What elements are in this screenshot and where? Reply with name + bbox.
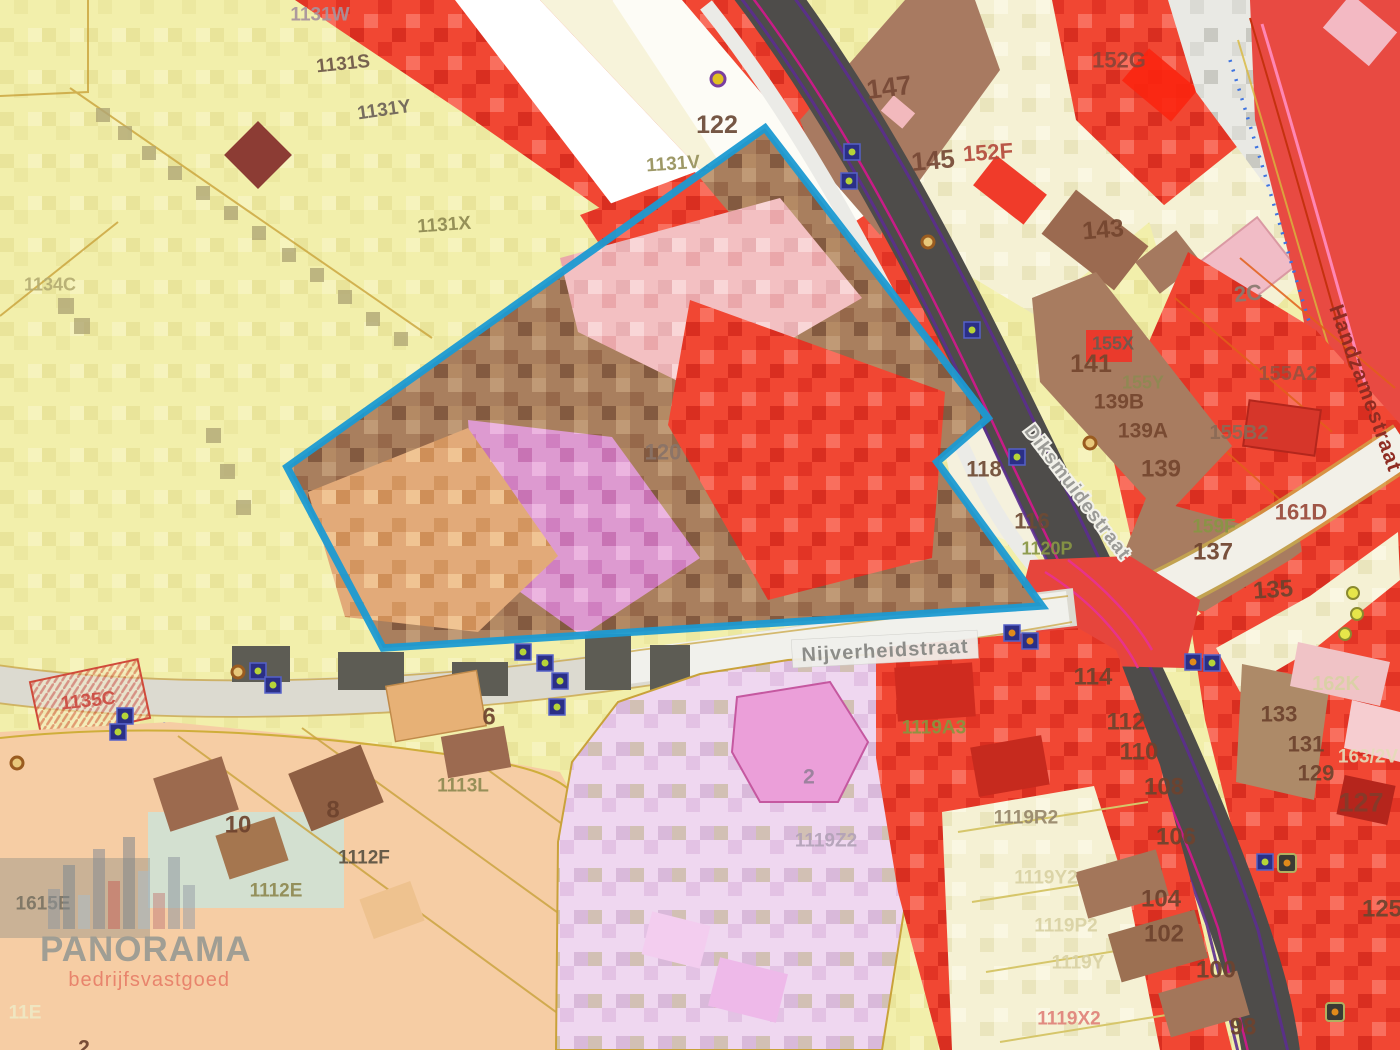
parcel-label-116-25: 116 — [1014, 509, 1050, 534]
map-marker-circle-brown[interactable] — [1084, 437, 1096, 449]
map-marker-square[interactable] — [515, 644, 531, 660]
parcel-label-1134C-52: 1134C — [24, 274, 76, 294]
map-marker-circle-brown[interactable] — [232, 666, 244, 678]
parcel-label-8-55: 8 — [326, 796, 339, 823]
map-marker-circle-yellow[interactable] — [1351, 608, 1363, 620]
parcel-label-104-33: 104 — [1141, 885, 1182, 912]
parcel-label-1119P2-47: 1119P2 — [1034, 916, 1097, 937]
parcel-label-155A2-16: 155A2 — [1259, 363, 1318, 385]
map-marker-square[interactable] — [552, 673, 568, 689]
parcel-label-1131X-3: 1131X — [416, 213, 472, 238]
parcel-label-137-22: 137 — [1193, 538, 1233, 565]
map-marker-circle-yellow[interactable] — [1339, 628, 1351, 640]
map-marker-square-orange[interactable] — [1004, 625, 1020, 641]
parcel-label-102-34: 102 — [1144, 920, 1184, 947]
parcel-label-135-23: 135 — [1252, 575, 1294, 605]
parcel-label-141-13: 141 — [1070, 350, 1112, 378]
parcel-label-155B2-18: 155B2 — [1210, 422, 1269, 444]
parcel-label-129-42: 129 — [1298, 761, 1335, 786]
parcel-label-152F-8: 152F — [962, 138, 1014, 166]
map-marker-square-orange[interactable] — [1022, 633, 1038, 649]
parcel-label-110-30: 110 — [1120, 738, 1159, 765]
parcel-label-161D-20: 161D — [1275, 500, 1328, 525]
map-marker-square[interactable] — [841, 173, 857, 189]
parcel-label-1119R2-45: 1119R2 — [994, 808, 1058, 829]
map-marker-square[interactable] — [117, 708, 133, 724]
parcel-label-106-32: 106 — [1156, 823, 1196, 850]
parcel-label-6-56: 6 — [482, 703, 495, 730]
map-marker-circle-yellow[interactable] — [1347, 587, 1359, 599]
parcel-label-139-19: 139 — [1141, 455, 1181, 482]
parcel-label-127-43: 127 — [1338, 787, 1383, 817]
parcel-label-1119Z2-50: 1119Z2 — [795, 831, 857, 852]
map-marker-circle-purple[interactable] — [711, 72, 725, 86]
cadastral-map-canvas[interactable]: NijverheidstraatDiksmuidestraatHandzames… — [0, 0, 1400, 1050]
map-marker-square[interactable] — [110, 724, 126, 740]
parcel-label-125-37: 125 — [1362, 895, 1400, 922]
map-marker-square[interactable] — [1257, 854, 1273, 870]
map-marker-square[interactable] — [250, 663, 266, 679]
parcel-label-98-36: 98 — [1230, 1013, 1257, 1040]
map-viewport[interactable]: NijverheidstraatDiksmuidestraatHandzames… — [0, 0, 1400, 1050]
parcel-label-155Y-14: 155Y — [1122, 372, 1164, 392]
parcel-label-1615E-60: 1615E — [16, 894, 71, 915]
parcel-label-2-62: 2 — [78, 1036, 90, 1050]
parcel-label-10-54: 10 — [225, 811, 252, 838]
map-marker-bolt[interactable] — [1326, 1003, 1344, 1021]
parcel-label-100-35: 100 — [1196, 956, 1236, 983]
parcel-label-152G-9: 152G — [1092, 48, 1146, 73]
parcel-label-108-31: 108 — [1144, 773, 1184, 800]
parcel-label-114-28: 114 — [1074, 663, 1113, 690]
map-marker-square[interactable] — [1204, 655, 1220, 671]
map-marker-square-orange[interactable] — [1185, 654, 1201, 670]
parcel-label-139A-17: 139A — [1118, 419, 1168, 442]
parcel-label-162K-38: 162K — [1312, 673, 1360, 695]
map-marker-square[interactable] — [265, 677, 281, 693]
parcel-label-112-29: 112 — [1107, 708, 1146, 735]
parcel-label-118-24: 118 — [966, 457, 1002, 482]
parcel-label-131-40: 131 — [1288, 732, 1325, 757]
parcel-label-1119Y-48: 1119Y — [1052, 953, 1105, 974]
map-marker-circle-brown[interactable] — [11, 757, 23, 769]
parcel-label-122-5: 122 — [696, 111, 738, 139]
parcel-label-1119A3-44: 1119A3 — [902, 718, 966, 739]
map-marker-square[interactable] — [537, 655, 553, 671]
parcel-label-1119X2-49: 1119X2 — [1037, 1009, 1100, 1030]
parcel-label-133-39: 133 — [1261, 702, 1298, 727]
parcel-label-1131W-0: 1131W — [290, 5, 349, 26]
parcel-label-159F-21: 159F — [1192, 517, 1235, 538]
parcel-label-147-6: 147 — [865, 70, 913, 105]
map-marker-square[interactable] — [964, 322, 980, 338]
map-marker-square[interactable] — [844, 144, 860, 160]
map-marker-square[interactable] — [549, 699, 565, 715]
parcel-label-1113L-57: 1113L — [437, 776, 489, 797]
parcel-label-163/2V-41: 163/2V — [1338, 747, 1399, 768]
parcel-label-139B-15: 139B — [1094, 390, 1144, 413]
map-marker-circle-brown[interactable] — [922, 236, 934, 248]
parcel-label-1131V-4: 1131V — [645, 152, 701, 177]
parcel-label-120-27: 120 — [645, 440, 682, 465]
parcel-label-11E-61: 11E — [9, 1003, 42, 1024]
building-darkred-1119-1 — [894, 662, 976, 721]
parcel-label-2-51: 2 — [803, 765, 815, 788]
parcel-label-2C-11: 2C — [1233, 279, 1264, 307]
parcel-label-1119Y2-46: 1119Y2 — [1014, 868, 1077, 889]
parcel-label-143-10: 143 — [1081, 214, 1125, 246]
parcel-label-1112F-58: 1112F — [338, 848, 390, 869]
parcel-label-145-7: 145 — [910, 143, 956, 177]
map-marker-bolt[interactable] — [1278, 854, 1296, 872]
map-marker-square[interactable] — [1009, 449, 1025, 465]
parcel-label-1120P-26: 1120P — [1021, 538, 1072, 558]
parcel-label-1112E-59: 1112E — [250, 881, 303, 902]
